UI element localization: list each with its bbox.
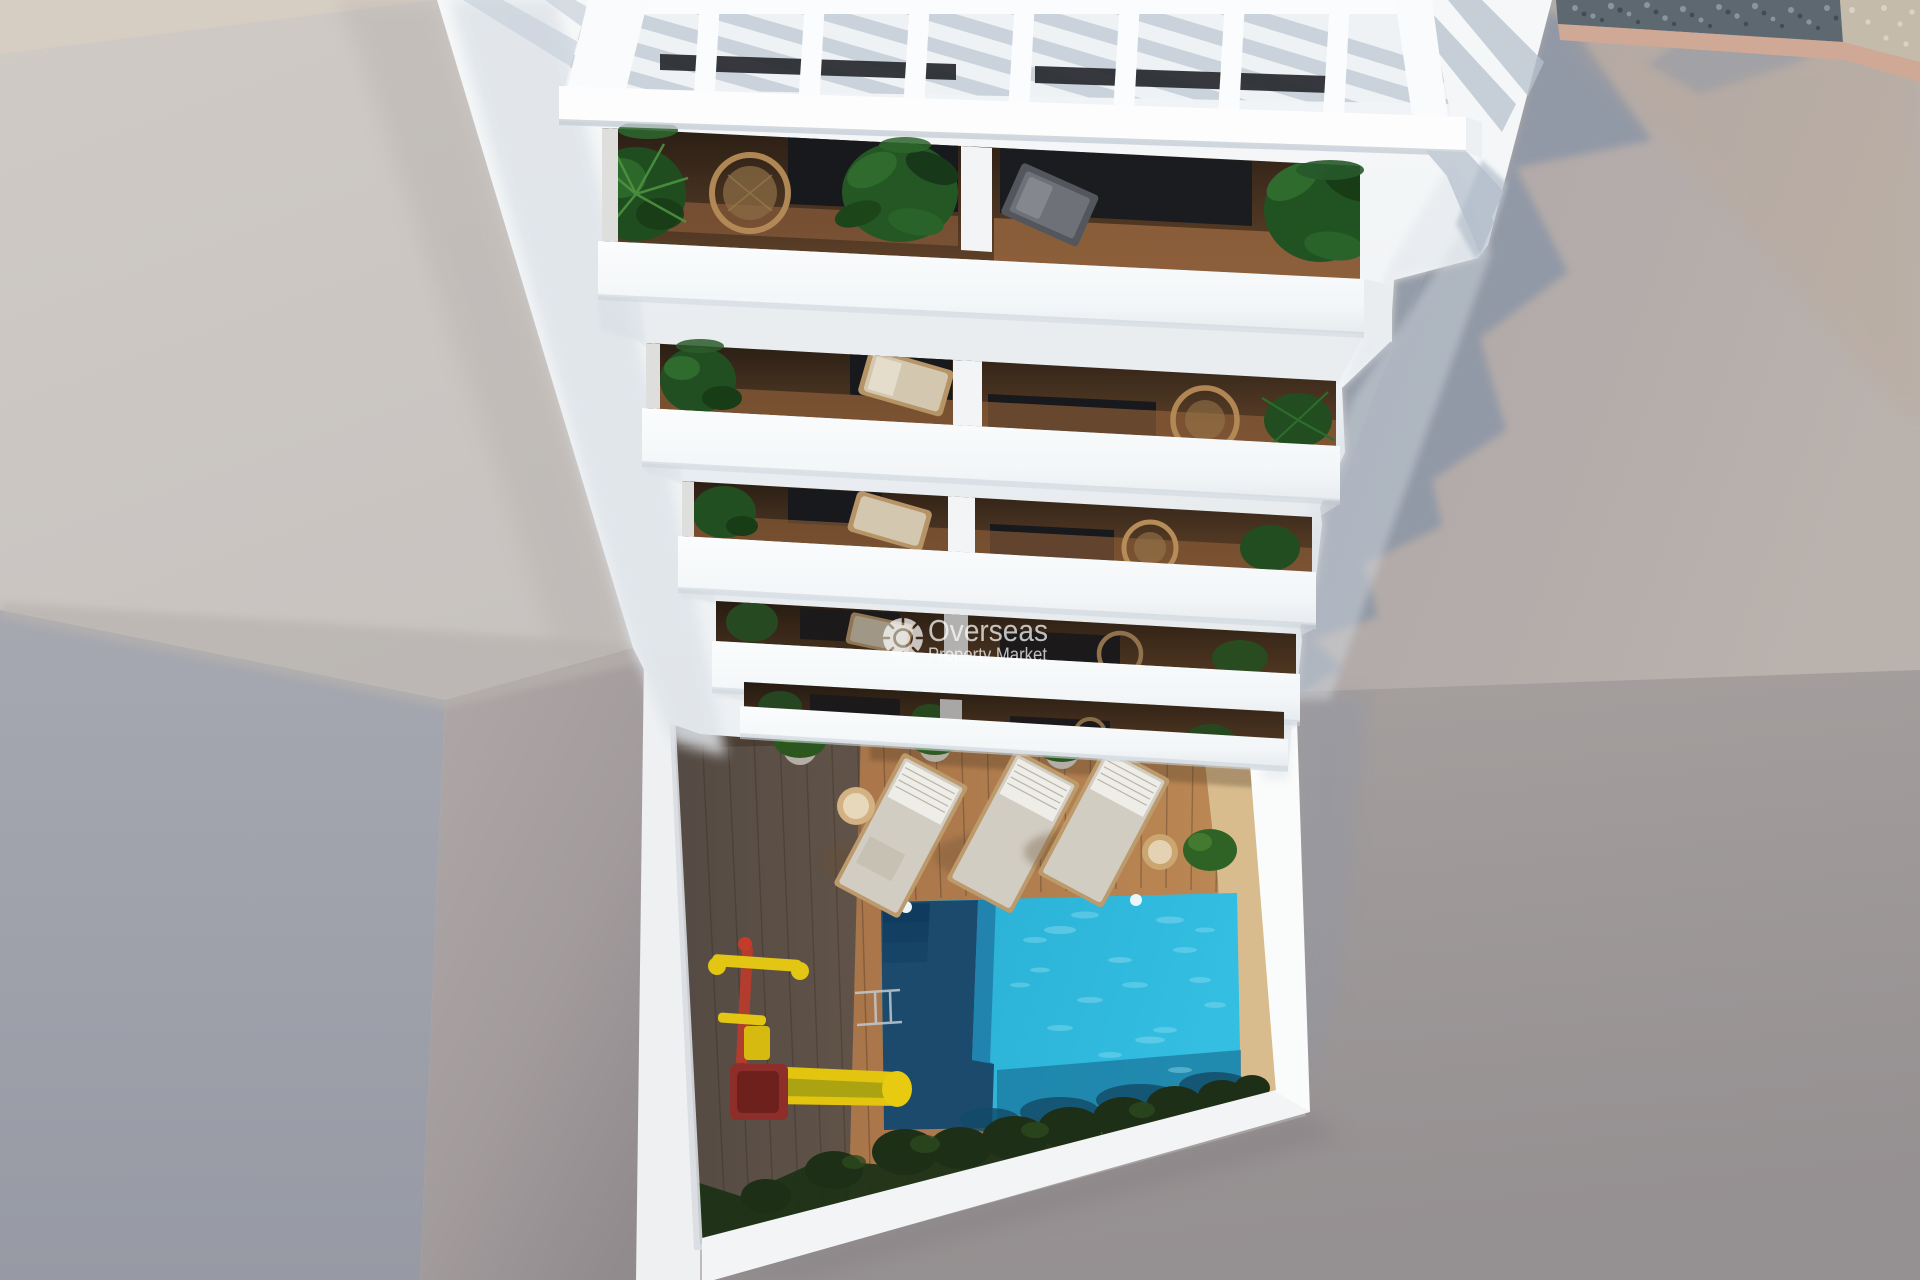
svg-text:Property Market: Property Market [928,645,1048,666]
svg-text:Overseas: Overseas [928,613,1048,648]
